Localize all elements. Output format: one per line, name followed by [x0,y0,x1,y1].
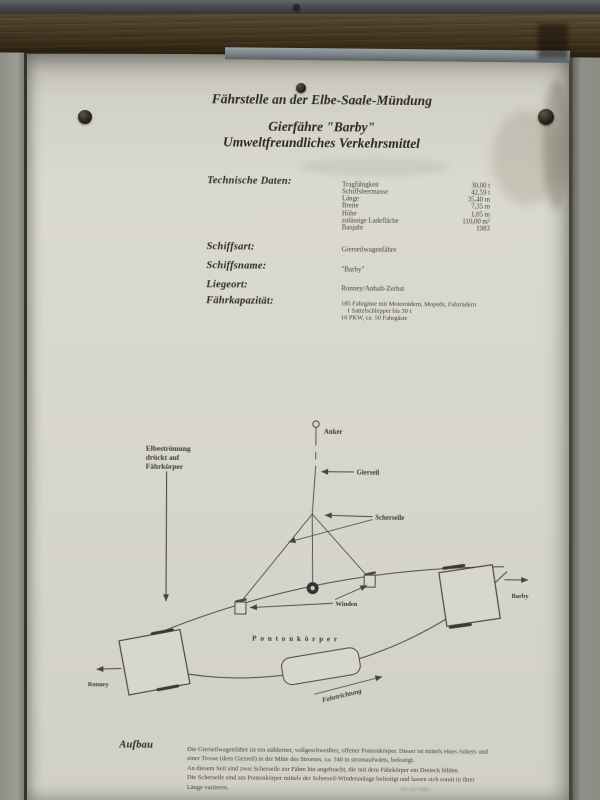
winch-right-mark [366,573,375,575]
capacity-line: 10 PKW, ca. 50 Fahrgäste [341,314,476,322]
stroemung-label-line1: Elbeströmung [146,444,191,453]
winden-arrow-right [336,585,367,599]
tech-name: Baujahr [342,224,440,232]
tech-value: 1983 [440,225,490,233]
poster-title-line1: Fährstelle an der Elbe-Saale-Mündung [39,90,600,111]
pontonkoerper-label: Pontonkörper [252,635,341,644]
aufbau-label: Aufbau [119,739,153,750]
barby-label: Barby [512,593,530,600]
poster-subtitle: Gierfähre "Barby" Umweltfreundliches Ver… [38,117,600,153]
gierseil-label: Gierseil [357,469,380,476]
stroemung-label-line2: drückt auf [146,453,180,462]
ronney-arrow [97,668,121,669]
anker-ring [313,421,319,427]
winch-left-mark [237,599,246,601]
screw-top-center [296,83,306,93]
scherseil-right-line [312,514,369,576]
faehrkapazitaet-label: Fährkapazität: [206,295,274,307]
screw-top-right [538,109,554,125]
fahrtrichtung-label: Fahrtrichtung [321,688,363,704]
winch-left [235,602,246,614]
scherseile-label: Scherseile [375,515,404,522]
anker-label: Anker [324,429,343,436]
gierseil-line [312,466,315,514]
cabin [280,646,361,686]
stroemung-label-line3: Fährkörper [146,462,184,471]
faehrkapazitaet-value: 185 Fahrgäste mit Motorrädern, Mopeds, F… [341,300,476,322]
scherseil-left-line [240,513,312,603]
tech-section-label: Technische Daten: [207,175,291,187]
stroemung-arrow [166,472,168,601]
liegeort-value: Ronney/Anhalt-Zerbst [341,284,404,293]
ramp-left [119,630,190,695]
liegeort-label: Liegeort: [206,279,248,290]
winch-right [364,575,375,587]
ferry-diagram: Anker Gierseil Scherseile Elbeströmung d… [78,413,546,717]
photo-of-info-sign: Fährstelle an der Elbe-Saale-Mündung Gie… [0,0,600,800]
gierseil-lower-line [312,514,314,583]
scherseile-arrow-apex [325,515,372,516]
winden-label: Winden [335,601,357,608]
schiffsart-label: Schiffsart: [207,241,255,252]
tech-table: Tragfähigkeit30,00 t Schiffsleermasse42,… [342,181,492,232]
schiffsname-value: "Barby" [341,265,364,273]
ronney-label: Ronney [88,681,110,688]
screw-metal-bar [293,4,300,11]
winden-arrow-left [250,603,332,609]
ramp-right [439,565,500,626]
schiffsname-label: Schiffsname: [206,260,266,272]
screw-top-left [78,110,92,124]
scherseile-arrow-cable [289,519,372,543]
tech-row: Baujahr1983 [342,224,492,232]
gierseil-attachment-hub [310,586,314,590]
schiffsart-value: Gierseilwagenfähre [342,245,397,253]
